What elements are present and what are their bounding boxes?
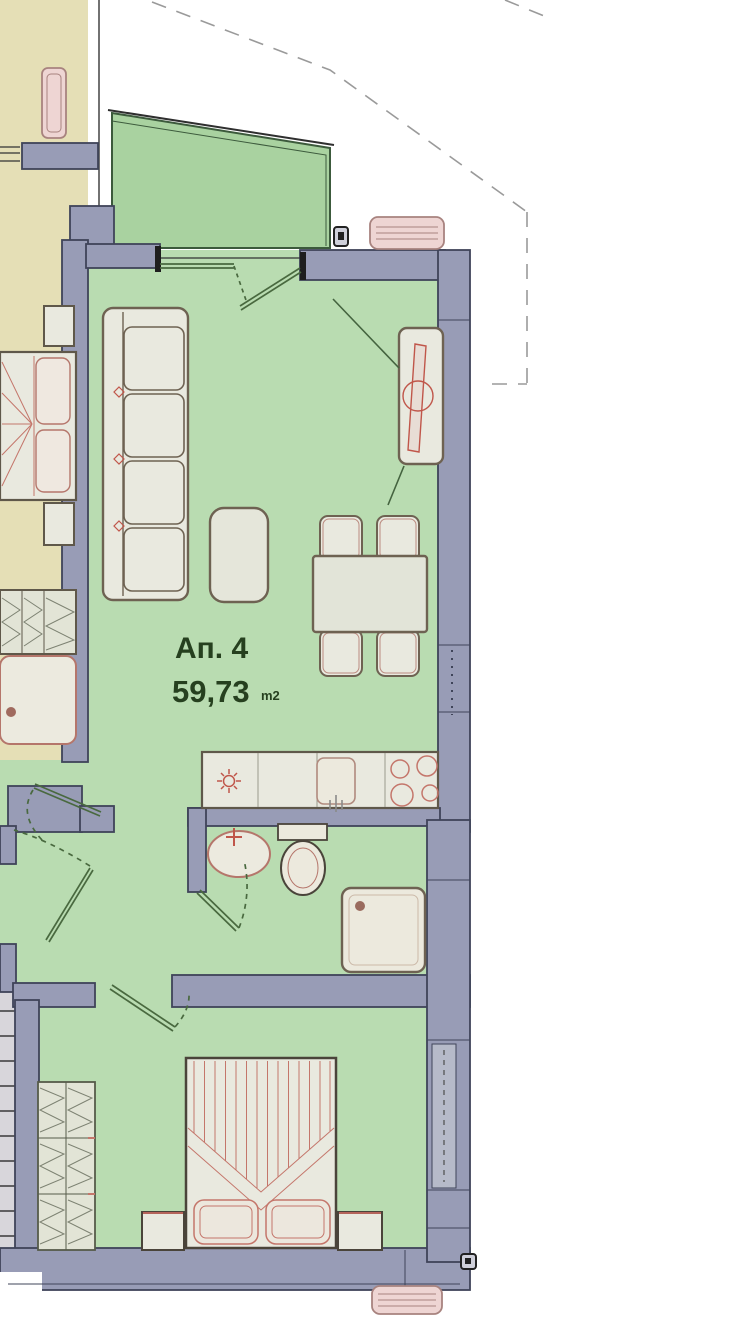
wall-stair-top [0,826,16,864]
adjacent-bed [0,352,76,500]
kitchen-counter [202,752,438,812]
apartment-area-value: 59,73 [172,674,250,709]
adjacent-shower [0,656,76,744]
nightstand [142,1212,184,1250]
tv-unit [399,328,443,464]
adjacent-wardrobe [0,590,76,654]
sofa-cushion [124,528,184,591]
wall-knob-bottom [461,1254,476,1269]
balcony [108,110,334,248]
radiator [42,68,66,138]
floor-plan-canvas: Ап. 4 59,73 m2 [0,0,738,1317]
coffee-table [210,508,268,602]
nightstand [44,503,74,545]
kitchen-sink [317,758,355,812]
sofa [103,308,188,600]
wall-bottom-notch [0,1272,42,1317]
wall-bath-bottom [172,975,470,1007]
wall-knob-top [334,227,348,246]
shower [342,888,425,972]
dining-table [313,556,427,632]
sofa-cushion [124,461,184,524]
dining-chair [377,630,419,676]
apartment-area-unit: m2 [261,688,280,703]
nightstand [44,306,74,346]
wall-bath-left [188,808,206,892]
dining-chair [320,630,362,676]
pillow [36,430,70,492]
shower-drain [6,707,16,717]
sofa-cushion [124,327,184,390]
toilet [278,824,327,895]
wall-top-left-segment [86,244,160,268]
double-bed [186,1058,336,1248]
wall-adjacent-top [22,143,98,169]
sofa-cushion [124,394,184,457]
wall-right-lower [427,820,470,1262]
floor-plan-drawing: Ап. 4 59,73 m2 [0,0,738,1317]
bedroom-furniture [38,1058,382,1250]
ac-unit-top [370,217,444,249]
bedroom-wardrobe [38,1082,95,1250]
wall-top-right-segment [300,250,445,280]
shower-drain [355,901,365,911]
nightstand [338,1212,382,1250]
wall-bedroom-left [15,1000,39,1252]
pillow [36,358,70,424]
apartment-number-label: Ап. 4 [175,632,248,665]
ac-unit-bottom [372,1286,442,1314]
bedroom-window [432,1044,456,1188]
